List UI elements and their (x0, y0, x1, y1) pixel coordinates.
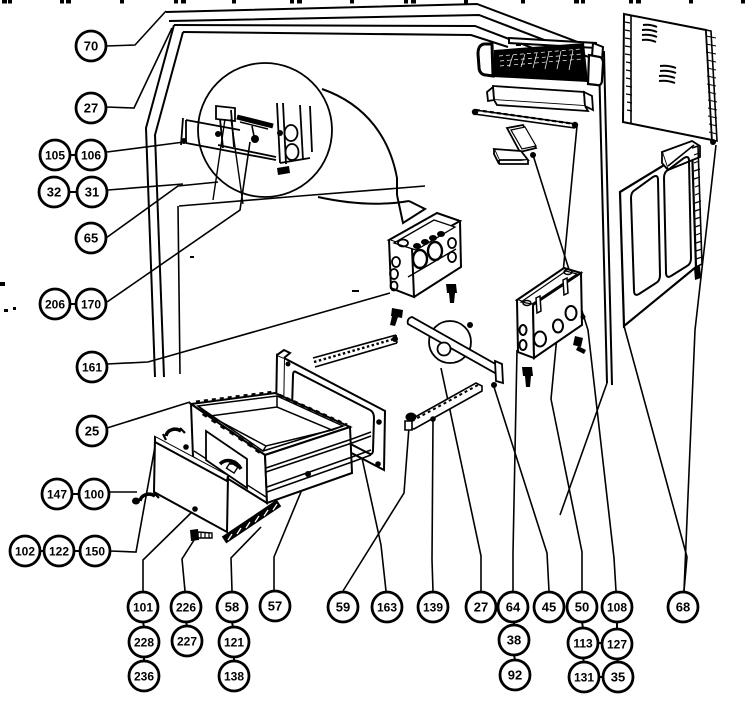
svg-text:59: 59 (336, 600, 350, 615)
svg-text:147: 147 (47, 488, 67, 502)
svg-text:138: 138 (224, 670, 244, 684)
svg-text:150: 150 (85, 545, 105, 559)
svg-text:113: 113 (573, 637, 593, 651)
svg-text:58: 58 (225, 600, 239, 615)
svg-text:170: 170 (81, 298, 101, 312)
svg-text:163: 163 (377, 601, 397, 615)
svg-text:92: 92 (508, 668, 522, 683)
svg-text:65: 65 (84, 231, 98, 246)
svg-text:236: 236 (134, 670, 154, 684)
svg-text:70: 70 (84, 39, 98, 54)
svg-text:206: 206 (45, 298, 65, 312)
svg-text:68: 68 (676, 600, 690, 615)
svg-text:102: 102 (15, 545, 35, 559)
svg-text:121: 121 (224, 636, 244, 650)
svg-text:105: 105 (45, 149, 65, 163)
svg-text:226: 226 (176, 601, 196, 615)
svg-text:228: 228 (134, 636, 154, 650)
svg-text:38: 38 (507, 633, 521, 648)
svg-text:106: 106 (81, 149, 101, 163)
svg-text:122: 122 (49, 545, 69, 559)
svg-text:25: 25 (85, 424, 99, 439)
svg-text:161: 161 (82, 361, 102, 375)
svg-text:127: 127 (607, 638, 627, 652)
svg-text:27: 27 (474, 600, 488, 615)
svg-text:101: 101 (133, 601, 153, 615)
svg-text:35: 35 (611, 670, 625, 685)
svg-text:139: 139 (423, 601, 443, 615)
svg-text:100: 100 (84, 488, 104, 502)
svg-text:57: 57 (268, 599, 282, 614)
svg-text:27: 27 (84, 101, 98, 116)
svg-text:227: 227 (177, 635, 197, 649)
svg-text:45: 45 (542, 600, 556, 615)
svg-text:50: 50 (575, 600, 589, 615)
svg-text:64: 64 (506, 600, 521, 615)
svg-text:108: 108 (607, 601, 627, 615)
svg-text:32: 32 (47, 185, 61, 200)
svg-text:31: 31 (85, 185, 99, 200)
svg-text:131: 131 (574, 671, 594, 685)
